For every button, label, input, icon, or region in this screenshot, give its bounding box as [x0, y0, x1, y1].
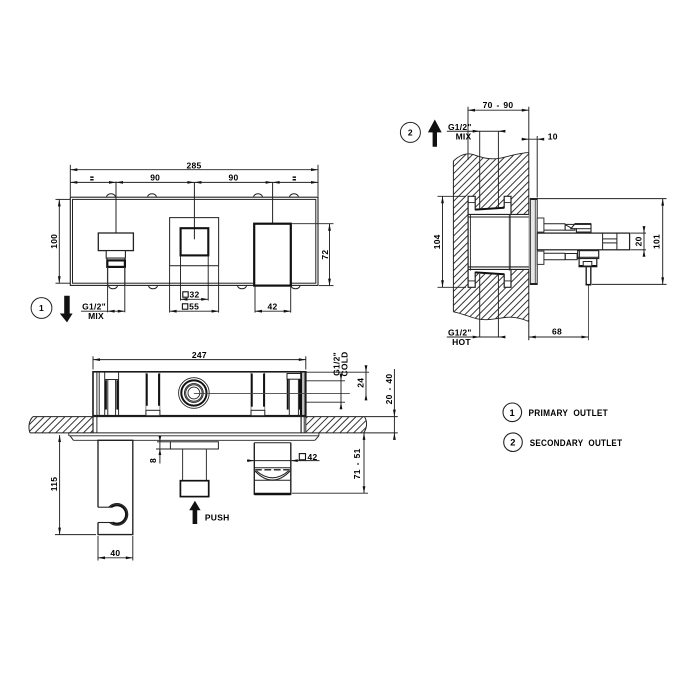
svg-text:90: 90 — [150, 173, 160, 183]
svg-text:42: 42 — [308, 452, 318, 462]
svg-text:104: 104 — [432, 234, 442, 249]
svg-text:72: 72 — [320, 250, 330, 260]
svg-text:2: 2 — [408, 128, 413, 138]
svg-text:PRIMARY OUTLET: PRIMARY OUTLET — [529, 408, 609, 418]
svg-text:247: 247 — [192, 350, 207, 360]
svg-text:1: 1 — [510, 408, 515, 418]
svg-text:20 - 40: 20 - 40 — [384, 374, 394, 405]
svg-text:101: 101 — [652, 234, 662, 249]
svg-text:2: 2 — [510, 438, 515, 448]
svg-text:MIX: MIX — [88, 311, 104, 321]
svg-text:MIX: MIX — [456, 132, 472, 142]
svg-text:HOT: HOT — [452, 337, 471, 347]
svg-text:1: 1 — [39, 303, 44, 313]
svg-text:G1/2": G1/2" — [82, 301, 106, 311]
svg-text:40: 40 — [110, 548, 120, 558]
svg-text:20: 20 — [634, 236, 644, 246]
svg-text:115: 115 — [49, 477, 59, 491]
svg-text:G1/2": G1/2" — [448, 327, 472, 337]
svg-text:PUSH: PUSH — [205, 513, 230, 523]
svg-text:55: 55 — [189, 302, 199, 312]
svg-text:32: 32 — [190, 290, 200, 300]
svg-text:8: 8 — [148, 458, 158, 463]
svg-text:70 - 90: 70 - 90 — [483, 100, 514, 110]
svg-text:10: 10 — [548, 131, 558, 141]
svg-text:24: 24 — [356, 378, 366, 388]
svg-text:68: 68 — [552, 327, 562, 337]
svg-text:90: 90 — [229, 173, 239, 183]
svg-text:SECONDARY OUTLET: SECONDARY OUTLET — [530, 438, 623, 448]
svg-text:100: 100 — [49, 234, 59, 249]
svg-text:71 - 51: 71 - 51 — [352, 448, 362, 479]
svg-text:285: 285 — [187, 161, 202, 171]
svg-text:42: 42 — [268, 302, 278, 312]
svg-text:COLD: COLD — [340, 351, 350, 376]
